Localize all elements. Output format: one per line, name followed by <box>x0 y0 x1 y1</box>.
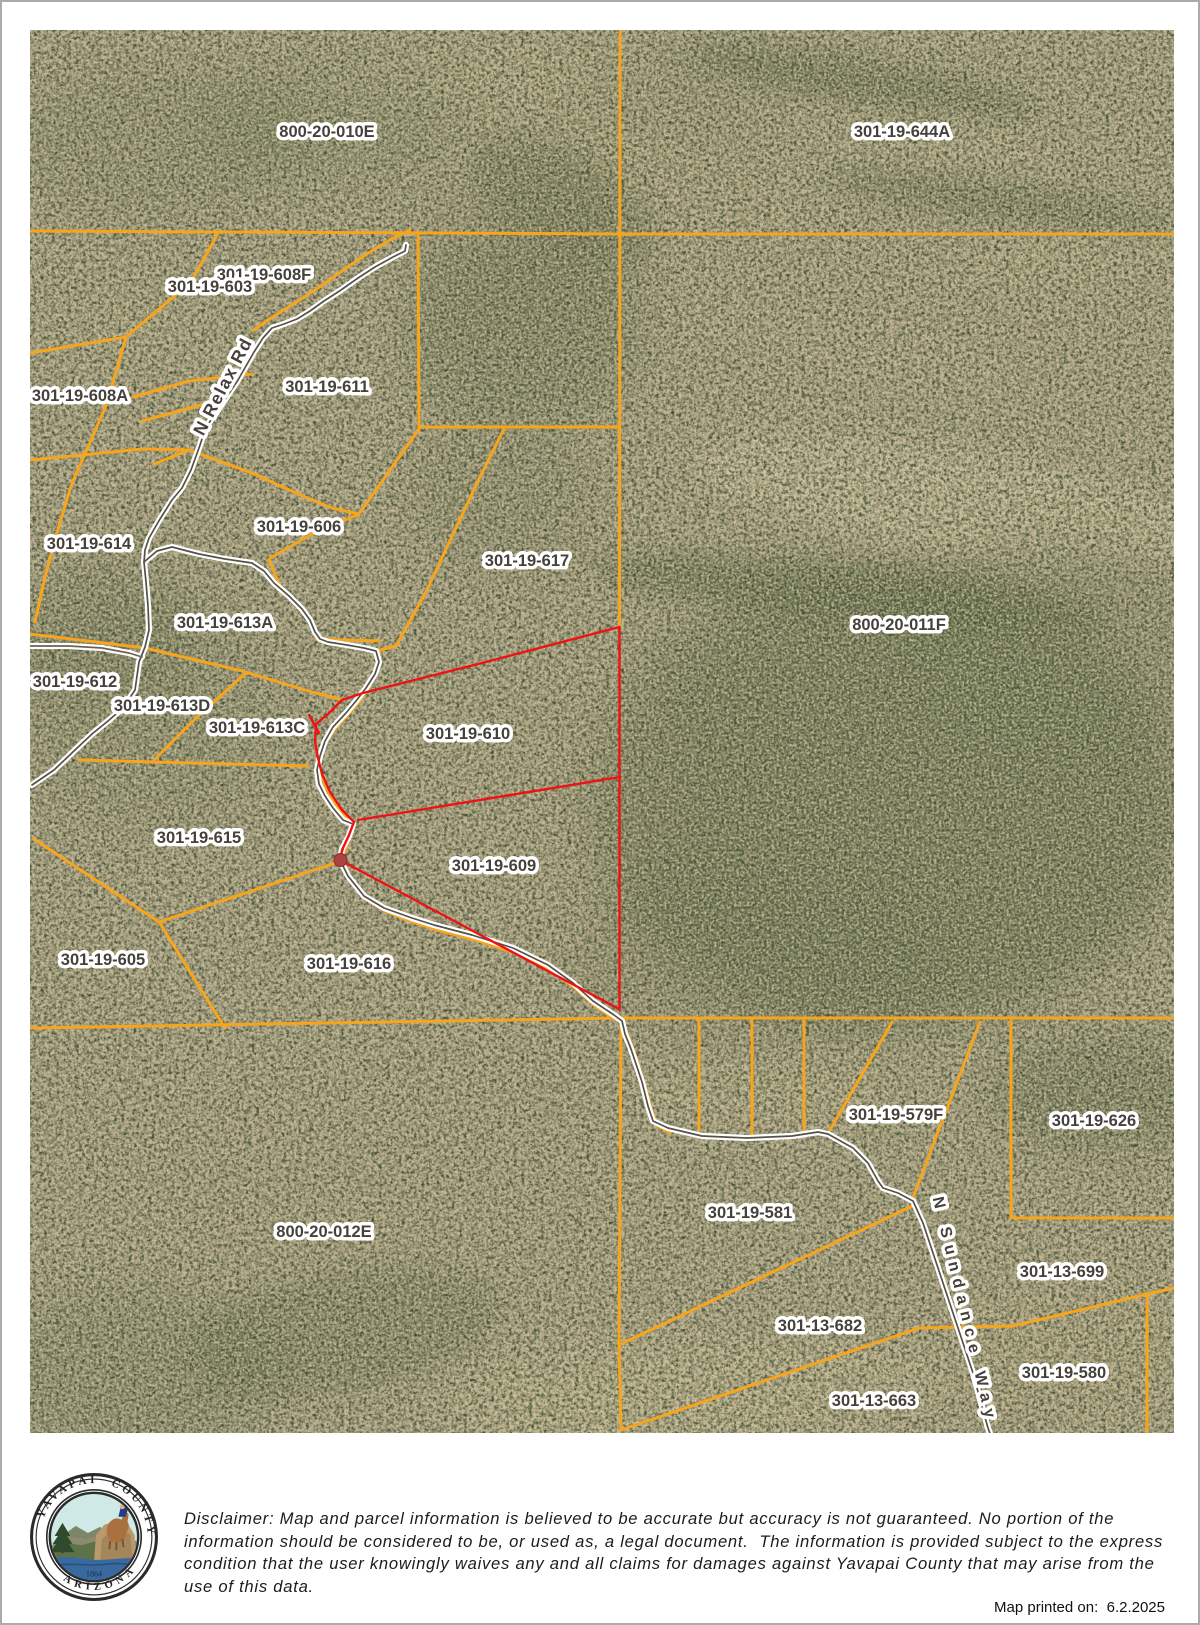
svg-text:301-13-682: 301-13-682 <box>778 1317 862 1335</box>
svg-text:301-19-609: 301-19-609 <box>452 857 536 875</box>
svg-text:800-20-010E: 800-20-010E <box>279 123 374 141</box>
svg-text:800-20-011F: 800-20-011F <box>852 616 946 634</box>
svg-text:301-19-611: 301-19-611 <box>285 378 369 396</box>
svg-text:301-19-612: 301-19-612 <box>33 673 117 691</box>
svg-text:301-19-579F: 301-19-579F <box>849 1106 943 1124</box>
svg-text:301-19-644A: 301-19-644A <box>854 123 950 141</box>
svg-text:1864: 1864 <box>86 1570 102 1579</box>
svg-text:301-13-663: 301-13-663 <box>832 1392 916 1410</box>
svg-text:301-19-613A: 301-19-613A <box>177 614 273 632</box>
svg-text:301-19-605: 301-19-605 <box>61 951 145 969</box>
svg-text:800-20-012E: 800-20-012E <box>276 1223 371 1241</box>
svg-text:301-19-603: 301-19-603 <box>168 278 252 296</box>
svg-text:301-19-626: 301-19-626 <box>1052 1112 1136 1130</box>
svg-text:301-13-699: 301-13-699 <box>1020 1263 1104 1281</box>
svg-text:301-19-606: 301-19-606 <box>257 518 341 536</box>
svg-text:301-19-580: 301-19-580 <box>1022 1364 1106 1382</box>
svg-text:301-19-613C: 301-19-613C <box>209 719 305 737</box>
svg-text:301-19-610: 301-19-610 <box>426 725 510 743</box>
svg-text:301-19-614: 301-19-614 <box>47 535 132 553</box>
svg-text:301-19-615: 301-19-615 <box>157 829 241 847</box>
svg-text:301-19-608A: 301-19-608A <box>32 387 128 405</box>
svg-text:301-19-613D: 301-19-613D <box>114 697 210 715</box>
svg-text:301-19-616: 301-19-616 <box>307 955 391 973</box>
svg-text:301-19-617: 301-19-617 <box>485 552 569 570</box>
svg-text:301-19-581: 301-19-581 <box>708 1204 792 1222</box>
